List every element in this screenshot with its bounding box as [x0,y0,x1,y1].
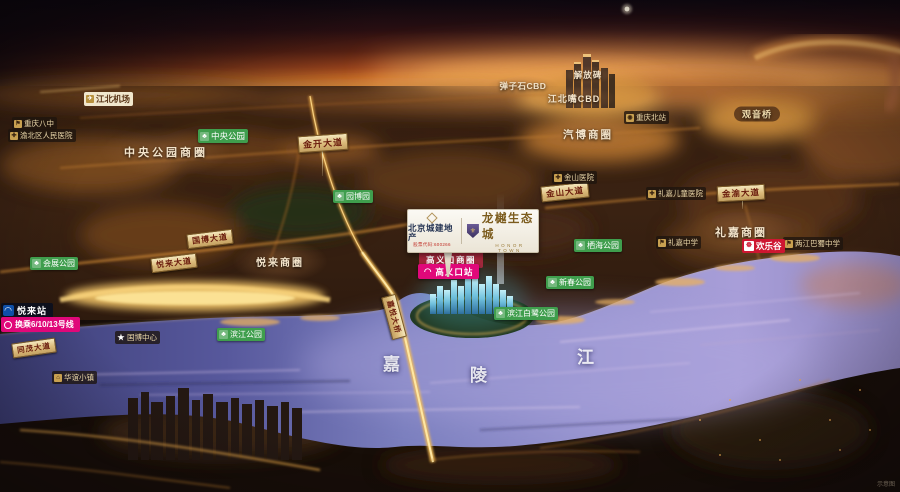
poi-label-lijia-childrens-hospital: ✚礼嘉儿童医院 [646,187,706,200]
poi-label-yubei-peoples-hospital: ✚渝北区人民医院 [8,129,76,142]
park-label-riverside-egret-park: ♣滨江白鹭公园 [494,307,558,320]
metro-logo-icon: ◠ [3,305,14,316]
star-icon: ★ [117,334,125,342]
location-map: 中央公园商圈 悦来商圈 礼嘉商圈 汽博商圈 江北嘴CBD 弹子石CBD 解放碑 … [0,0,900,492]
developer-logo: 北京城建地产 股票代码:600266 [408,214,456,249]
tree-icon: ♣ [32,259,41,268]
school-flag-icon: ⚑ [14,120,22,128]
park-label-central-park: ♣中央公园 [198,129,248,143]
shield-logo-icon: ⚜ [467,224,479,238]
poi-label-expo-centre: ★国博中心 [115,331,160,344]
road-plaque-jinkai-avenue: 金开大道 [297,133,348,153]
project-name-en: HONOR TOWN [482,243,538,253]
building-icon: ⌂ [54,374,62,382]
zone-jiefangbei: 解放碑 [561,66,615,84]
watermark: 示意图 [877,479,895,488]
park-label-qihai-park: ♣栖海公园 [574,239,622,252]
poi-label-jinshan-hospital: ✚金山医院 [552,171,597,184]
tree-icon: ♣ [548,278,557,287]
zone-qibo-district: 汽博商圈 [540,116,636,152]
project-logo: ⚜ 龙樾生态城 HONOR TOWN [467,210,538,253]
park-label-exhibition-park: ♣会展公园 [30,257,78,270]
river-name-char: 江 [577,343,594,368]
transfer-ring-icon [4,321,12,329]
poi-label-lijia-middle-school: ⚑礼嘉中学 [656,236,701,249]
metro-station-yuelai: ◠悦来站 [1,303,53,318]
park-label-riverside-park: ♣滨江公园 [217,328,265,341]
school-flag-icon: ⚑ [658,239,666,247]
road-plaque-jinyu-avenue: 金渝大道 [717,184,766,202]
poi-label-huayi-town: ⌂华谊小镇 [52,371,97,384]
project-billboard: 北京城建地产 股票代码:600266 ⚜ 龙樾生态城 HONOR TOWN [407,209,539,253]
hospital-cross-icon: ✚ [10,132,18,140]
developer-tagline: 股票代码:600266 [413,243,451,248]
plane-icon: ✈ [86,95,94,103]
billboard-divider [461,218,462,244]
tree-icon: ♣ [496,309,505,318]
poi-label-jiangbei-airport: ✈江北机场 [84,92,133,106]
tree-icon: ♣ [335,192,344,201]
zone-yuelai-district: 悦来商圈 [232,239,328,283]
ferris-wheel-icon: ☸ [744,241,754,251]
school-flag-icon: ⚑ [785,240,793,248]
train-icon: ◉ [626,114,634,122]
plaque-stem [322,150,323,176]
park-label-yuanboyuan: ♣园博园 [333,190,373,203]
zone-danzishi-cbd: 弹子石CBD [488,76,558,96]
metro-logo-icon: ◠ [424,266,432,277]
tree-icon: ♣ [576,241,585,250]
poi-label-chongqing-north-station: ◉重庆北站 [624,111,669,124]
river-name-char: 陵 [470,361,487,386]
hospital-cross-icon: ✚ [554,174,562,182]
developer-name: 北京城建地产 [408,224,456,243]
poi-label-liangjiang-bashu-school: ⚑两江巴蜀中学 [783,237,843,250]
tree-icon: ♣ [200,132,209,141]
poi-label-happy-valley: ☸欢乐谷 [742,239,785,253]
transfer-badge-yuelai: 换乘6/10/13号线 [1,317,80,332]
river-name-char: 嘉 [383,350,400,375]
tree-icon: ♣ [219,330,228,339]
zone-guanyinqiao: 观音桥 [734,107,780,122]
hospital-cross-icon: ✚ [648,190,656,198]
diamond-logo-icon [426,212,437,223]
project-name: 龙樾生态城 [482,210,538,242]
park-label-xinchun-park: ♣新春公园 [546,276,594,289]
